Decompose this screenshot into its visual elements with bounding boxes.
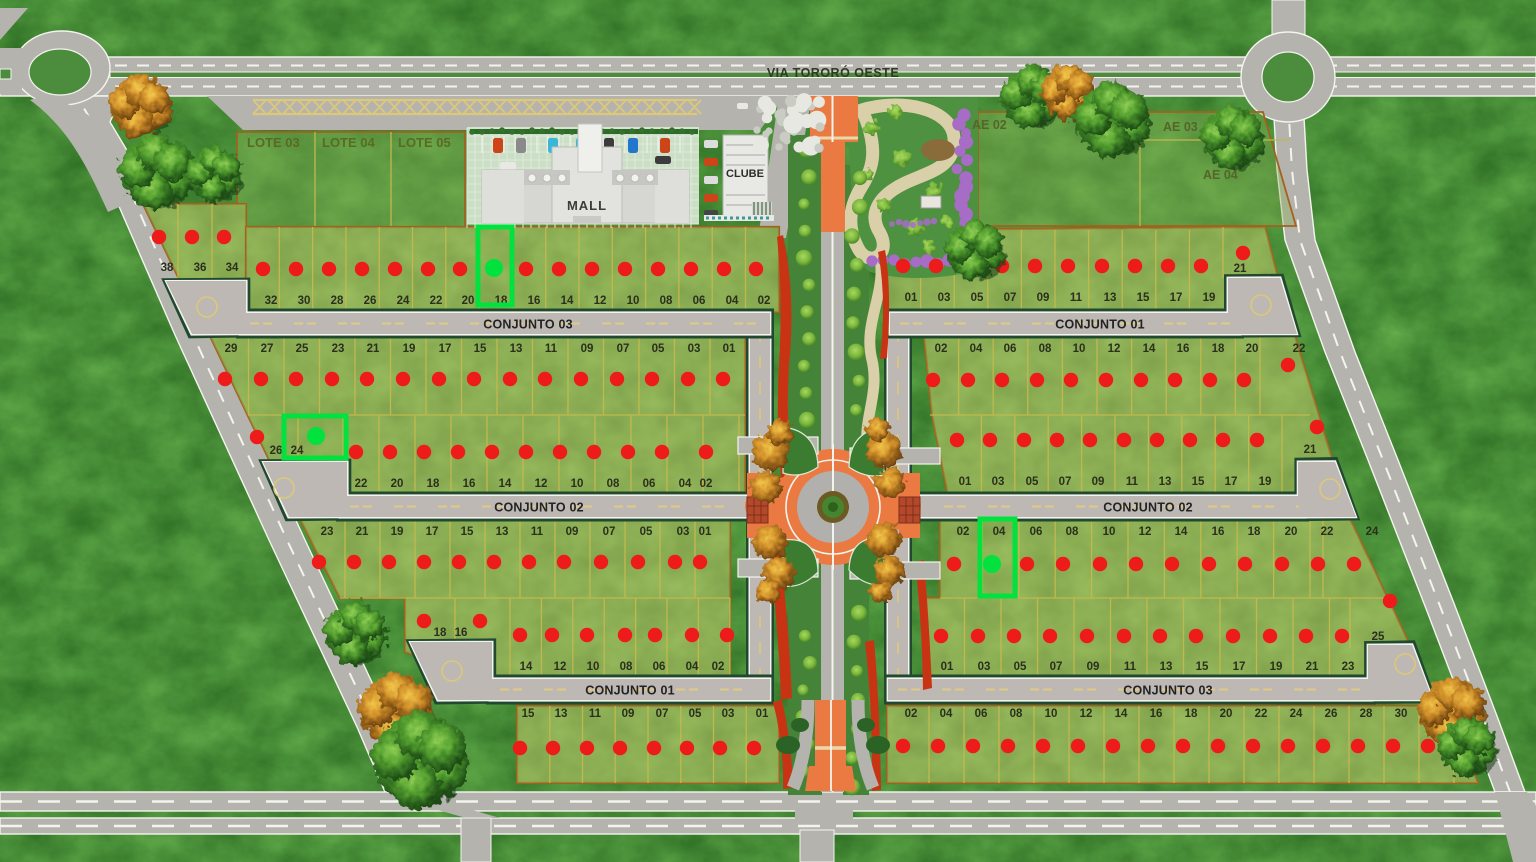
svg-text:20: 20 [391, 478, 404, 490]
svg-text:11: 11 [545, 343, 558, 355]
svg-text:CONJUNTO 03: CONJUNTO 03 [483, 318, 573, 332]
svg-text:MALL: MALL [567, 198, 607, 213]
svg-text:VIA TORORÓ OESTE: VIA TORORÓ OESTE [767, 65, 899, 80]
svg-text:07: 07 [617, 343, 630, 355]
svg-text:22: 22 [1293, 343, 1306, 355]
svg-text:26: 26 [1325, 708, 1338, 720]
svg-text:03: 03 [722, 708, 735, 720]
svg-text:CONJUNTO 01: CONJUNTO 01 [585, 684, 675, 698]
svg-text:20: 20 [1285, 526, 1298, 538]
svg-text:30: 30 [298, 295, 311, 307]
svg-text:22: 22 [430, 295, 443, 307]
svg-text:20: 20 [462, 295, 475, 307]
svg-text:12: 12 [1080, 708, 1093, 720]
svg-text:12: 12 [535, 478, 548, 490]
svg-text:06: 06 [1030, 526, 1043, 538]
svg-text:01: 01 [959, 476, 972, 488]
svg-text:18: 18 [1185, 708, 1198, 720]
svg-text:12: 12 [554, 661, 567, 673]
svg-text:24: 24 [1290, 708, 1303, 720]
svg-text:13: 13 [496, 526, 509, 538]
svg-text:07: 07 [603, 526, 616, 538]
svg-text:02: 02 [758, 295, 771, 307]
svg-text:03: 03 [677, 526, 690, 538]
svg-text:10: 10 [627, 295, 640, 307]
svg-text:24: 24 [291, 445, 304, 457]
svg-text:15: 15 [1192, 476, 1205, 488]
svg-text:CONJUNTO 01: CONJUNTO 01 [1055, 318, 1145, 332]
svg-text:18: 18 [434, 627, 447, 639]
svg-text:17: 17 [426, 526, 439, 538]
svg-text:15: 15 [522, 708, 535, 720]
svg-text:17: 17 [1225, 476, 1238, 488]
svg-text:03: 03 [938, 292, 951, 304]
svg-text:19: 19 [403, 343, 416, 355]
svg-text:32: 32 [265, 295, 278, 307]
svg-text:27: 27 [261, 343, 274, 355]
svg-text:08: 08 [1010, 708, 1023, 720]
svg-text:18: 18 [427, 478, 440, 490]
svg-text:06: 06 [1004, 343, 1017, 355]
svg-text:01: 01 [699, 526, 712, 538]
svg-text:21: 21 [367, 343, 380, 355]
svg-text:16: 16 [1212, 526, 1225, 538]
svg-text:19: 19 [1259, 476, 1272, 488]
svg-text:14: 14 [1115, 708, 1128, 720]
svg-text:08: 08 [1039, 343, 1052, 355]
svg-text:11: 11 [1070, 292, 1083, 304]
svg-text:09: 09 [566, 526, 579, 538]
svg-text:04: 04 [993, 526, 1006, 538]
svg-text:AE 03: AE 03 [1163, 120, 1198, 134]
svg-text:CLUBE: CLUBE [726, 168, 764, 180]
svg-text:14: 14 [520, 661, 533, 673]
svg-text:06: 06 [975, 708, 988, 720]
svg-text:05: 05 [640, 526, 653, 538]
svg-text:15: 15 [1196, 661, 1209, 673]
svg-text:01: 01 [941, 661, 954, 673]
svg-text:03: 03 [688, 343, 701, 355]
svg-text:01: 01 [905, 292, 918, 304]
svg-text:24: 24 [1366, 526, 1379, 538]
svg-text:17: 17 [1233, 661, 1246, 673]
svg-text:05: 05 [971, 292, 984, 304]
svg-text:05: 05 [652, 343, 665, 355]
svg-text:14: 14 [499, 478, 512, 490]
svg-text:06: 06 [693, 295, 706, 307]
svg-text:10: 10 [1045, 708, 1058, 720]
svg-text:36: 36 [194, 262, 207, 274]
svg-text:16: 16 [528, 295, 541, 307]
svg-text:08: 08 [660, 295, 673, 307]
svg-text:11: 11 [531, 526, 544, 538]
svg-text:19: 19 [1203, 292, 1216, 304]
svg-text:02: 02 [957, 526, 970, 538]
svg-text:14: 14 [1175, 526, 1188, 538]
svg-text:02: 02 [935, 343, 948, 355]
svg-text:22: 22 [1255, 708, 1268, 720]
svg-text:16: 16 [1150, 708, 1163, 720]
svg-text:20: 20 [1220, 708, 1233, 720]
svg-text:28: 28 [331, 295, 344, 307]
svg-text:26: 26 [270, 445, 283, 457]
svg-text:21: 21 [356, 526, 369, 538]
svg-text:29: 29 [225, 343, 238, 355]
svg-text:23: 23 [1342, 661, 1355, 673]
svg-text:15: 15 [1137, 292, 1150, 304]
svg-text:14: 14 [561, 295, 574, 307]
svg-text:13: 13 [555, 708, 568, 720]
svg-text:CONJUNTO 02: CONJUNTO 02 [1103, 501, 1193, 515]
svg-text:21: 21 [1304, 444, 1317, 456]
svg-text:24: 24 [397, 295, 410, 307]
svg-text:10: 10 [1073, 343, 1086, 355]
svg-text:06: 06 [653, 661, 666, 673]
svg-text:12: 12 [1139, 526, 1152, 538]
svg-text:16: 16 [1177, 343, 1190, 355]
svg-text:07: 07 [656, 708, 669, 720]
svg-text:15: 15 [461, 526, 474, 538]
svg-text:04: 04 [686, 661, 699, 673]
svg-text:09: 09 [622, 708, 635, 720]
svg-text:17: 17 [439, 343, 452, 355]
svg-text:CONJUNTO 03: CONJUNTO 03 [1123, 684, 1213, 698]
svg-text:02: 02 [905, 708, 918, 720]
svg-text:01: 01 [723, 343, 736, 355]
svg-text:LOTE 05: LOTE 05 [398, 135, 451, 150]
svg-text:19: 19 [391, 526, 404, 538]
svg-text:38: 38 [161, 262, 174, 274]
svg-text:30: 30 [1395, 708, 1408, 720]
svg-text:21: 21 [1306, 661, 1319, 673]
svg-text:13: 13 [1160, 661, 1173, 673]
svg-text:21: 21 [1234, 263, 1247, 275]
svg-text:08: 08 [607, 478, 620, 490]
svg-text:11: 11 [1124, 661, 1137, 673]
svg-text:LOTE 03: LOTE 03 [247, 135, 300, 150]
svg-text:13: 13 [510, 343, 523, 355]
svg-text:05: 05 [1014, 661, 1027, 673]
svg-text:06: 06 [643, 478, 656, 490]
svg-text:09: 09 [1092, 476, 1105, 488]
svg-text:08: 08 [1066, 526, 1079, 538]
svg-text:01: 01 [756, 708, 769, 720]
svg-text:13: 13 [1159, 476, 1172, 488]
svg-text:25: 25 [1372, 631, 1385, 643]
svg-text:04: 04 [726, 295, 739, 307]
svg-text:14: 14 [1143, 343, 1156, 355]
svg-text:07: 07 [1004, 292, 1017, 304]
svg-text:10: 10 [1103, 526, 1116, 538]
svg-text:18: 18 [1248, 526, 1261, 538]
svg-text:04: 04 [679, 478, 692, 490]
svg-text:19: 19 [1270, 661, 1283, 673]
svg-text:11: 11 [1126, 476, 1139, 488]
svg-text:23: 23 [332, 343, 345, 355]
svg-text:17: 17 [1170, 292, 1183, 304]
svg-text:07: 07 [1059, 476, 1072, 488]
svg-text:11: 11 [589, 708, 602, 720]
svg-text:09: 09 [1087, 661, 1100, 673]
svg-text:LOTE 04: LOTE 04 [322, 135, 376, 150]
svg-text:20: 20 [1246, 343, 1259, 355]
svg-text:18: 18 [1212, 343, 1225, 355]
svg-text:03: 03 [992, 476, 1005, 488]
svg-text:AE 04: AE 04 [1203, 168, 1238, 182]
svg-text:22: 22 [355, 478, 368, 490]
svg-text:28: 28 [1360, 708, 1373, 720]
svg-text:16: 16 [463, 478, 476, 490]
svg-text:12: 12 [594, 295, 607, 307]
svg-text:04: 04 [970, 343, 983, 355]
svg-text:08: 08 [620, 661, 633, 673]
svg-text:12: 12 [1108, 343, 1121, 355]
svg-text:09: 09 [581, 343, 594, 355]
svg-text:10: 10 [571, 478, 584, 490]
svg-text:03: 03 [978, 661, 991, 673]
svg-text:05: 05 [1026, 476, 1039, 488]
svg-text:15: 15 [474, 343, 487, 355]
svg-text:CONJUNTO 02: CONJUNTO 02 [494, 501, 584, 515]
svg-text:16: 16 [455, 627, 468, 639]
svg-text:25: 25 [296, 343, 309, 355]
svg-text:02: 02 [712, 661, 725, 673]
svg-text:05: 05 [689, 708, 702, 720]
svg-text:23: 23 [321, 526, 334, 538]
svg-text:AE 02: AE 02 [972, 118, 1007, 132]
svg-text:02: 02 [700, 478, 713, 490]
svg-text:10: 10 [587, 661, 600, 673]
svg-text:13: 13 [1104, 292, 1117, 304]
svg-text:22: 22 [1321, 526, 1334, 538]
svg-text:26: 26 [364, 295, 377, 307]
svg-text:34: 34 [226, 262, 239, 274]
svg-text:04: 04 [940, 708, 953, 720]
svg-text:09: 09 [1037, 292, 1050, 304]
svg-text:07: 07 [1050, 661, 1063, 673]
